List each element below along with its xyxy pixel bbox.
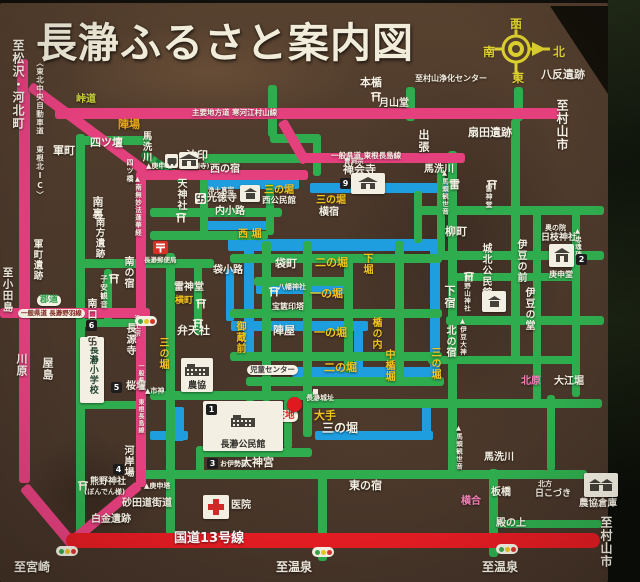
town-road-segment — [138, 470, 587, 479]
map-label: 二の堀 — [324, 362, 357, 373]
map-label: 三の堀 — [264, 186, 294, 196]
map-label: 南方遺跡 — [94, 217, 104, 259]
town-road-segment — [414, 191, 422, 243]
map-label: 伊豆の前 — [515, 239, 525, 283]
map-label: 光徳寺 — [207, 194, 237, 204]
house-landmark-box — [240, 185, 260, 202]
map-title: 長瀞ふるさと案内図 — [36, 9, 481, 69]
current-location-dot — [287, 397, 302, 412]
map-label: 至温泉 — [276, 561, 312, 573]
map-label: 砂田道街道 — [122, 499, 172, 509]
map-label: 下堀 — [361, 253, 371, 275]
map-label: 北方 — [538, 481, 552, 488]
map-label: 内小路 — [215, 207, 245, 217]
map-label: 軍町遺跡 — [32, 239, 42, 281]
map-label: 二の堀 — [315, 257, 348, 268]
map-label: 至村山市 — [556, 99, 568, 151]
map-label: ▲南無妙法蓮華経 — [134, 175, 141, 237]
map-label: 東の宿 — [349, 480, 382, 491]
traffic-light-dot — [71, 549, 76, 554]
map-label: 出張 — [418, 129, 429, 153]
traffic-light-icon — [56, 546, 78, 556]
map-label: 長瀞城址 — [306, 395, 334, 402]
number-badge: 6 — [86, 320, 97, 331]
map-label: 〈東北中央自動車道 東根北IC〉 — [36, 59, 44, 200]
map-label: 伊豆の堂 — [523, 287, 533, 331]
post-landmark-box — [151, 239, 170, 256]
compass-south-label: 南 — [483, 43, 495, 60]
landmark-caption: 農協 — [188, 382, 206, 392]
map-label: 四ツ壇 — [90, 137, 123, 148]
map-label: 月山堂 — [379, 99, 409, 109]
temple-landmark-box — [351, 173, 385, 194]
temple-icon — [357, 173, 379, 194]
map-label: ▲庚申塔 — [144, 483, 170, 490]
torii-icon — [486, 175, 498, 194]
map-label: 大手 — [314, 410, 336, 421]
map-label: ▲市神 — [145, 388, 164, 395]
torii-icon — [108, 269, 120, 288]
map-label: 楯の内 — [370, 317, 380, 350]
map-label: 中楯堀 — [383, 349, 393, 382]
traffic-light-dot — [315, 550, 320, 555]
shrine-icon — [553, 244, 571, 267]
traffic-light-dot — [144, 319, 149, 324]
map-label: 西公民館 — [262, 197, 296, 206]
hall-icon — [230, 401, 256, 441]
map-label: 御蔵前 — [234, 321, 244, 354]
map-sign-photo: 長瀞ふるさと案内図 至松沢・河北町〈東北中央自動車道 東根北IC〉八反遺跡至村山… — [0, 0, 640, 582]
traffic-light-icon — [312, 547, 334, 557]
map-label: 袋町 — [275, 258, 297, 269]
traffic-light-icon — [135, 316, 157, 326]
map-label: (ぼんでん様) — [84, 489, 125, 496]
map-label: 軍町 — [53, 145, 75, 156]
map-label: 扇田遺跡 — [468, 127, 512, 138]
map-label: 白金遺跡 — [91, 515, 131, 525]
traffic-light-dot — [65, 549, 70, 554]
info-pill: 一般県道 長瀞野羽線 — [18, 309, 85, 318]
manji-icon — [195, 189, 206, 208]
map-label: 至小田島 — [2, 267, 13, 313]
shrine-landmark-box — [549, 244, 574, 267]
map-label: 大江堀 — [554, 377, 584, 387]
cross-landmark-box — [203, 495, 229, 519]
map-label: 屋島 — [42, 357, 53, 381]
map-label: 馬洗川 — [141, 131, 151, 163]
map-label: 西 堀 — [238, 230, 261, 240]
map-label: 一般県道 東根長島線 — [137, 363, 143, 434]
number-badge: 1 — [206, 404, 217, 415]
number-badge: 2 — [576, 254, 587, 265]
town-road-segment — [310, 399, 602, 408]
map-label: 西の宿 — [210, 165, 240, 175]
map-label: 熊野神社 — [90, 478, 126, 487]
cross-icon — [207, 495, 225, 519]
bus-landmark-box — [165, 154, 178, 168]
map-label: 馬洗川 — [484, 453, 514, 463]
map-label: 横合 — [461, 497, 481, 507]
landmark-caption: 長瀞公民館 — [220, 441, 265, 451]
traffic-light-dot — [150, 319, 155, 324]
torii-icon — [175, 208, 187, 227]
traffic-light-icon — [496, 544, 518, 554]
map-board: 長瀞ふるさと案内図 至松沢・河北町〈東北中央自動車道 東根北IC〉八反遺跡至村山… — [0, 3, 608, 582]
compass-west-label: 西 — [510, 15, 522, 32]
moat-waterway-segment — [228, 239, 440, 251]
torii-icon — [192, 314, 204, 333]
barn-landmark-box — [584, 473, 618, 497]
traffic-light-dot — [138, 319, 143, 324]
torii-icon — [463, 267, 475, 286]
map-label: 子安観音 — [100, 275, 108, 309]
map-label: 一般県道 東根長島線 — [331, 152, 401, 160]
town-road-segment — [230, 309, 442, 318]
house-icon — [243, 185, 258, 202]
traffic-light-dot — [505, 547, 510, 552]
house-icon — [487, 291, 502, 312]
torii-icon — [195, 294, 207, 313]
map-label: 至松沢・河北町 — [12, 39, 24, 130]
map-label: 三の堀 — [316, 196, 346, 206]
map-label: 至温泉 — [482, 561, 518, 573]
map-label: 南口 — [85, 298, 95, 320]
moat-waterway-segment — [292, 367, 440, 377]
prefectural-road-segment — [19, 91, 30, 483]
map-label: 天神社 — [175, 178, 185, 211]
hall-icon — [184, 358, 210, 382]
national-route-13-road — [66, 533, 600, 548]
map-label: 陣屋 — [273, 325, 295, 336]
map-label: 川原 — [16, 353, 27, 377]
map-label: 庚申堂 — [549, 271, 573, 279]
map-label: 至宮崎 — [14, 561, 50, 573]
map-label: ▲馬頭観世音 — [441, 169, 448, 216]
map-label: 宝篋印塔 — [272, 303, 304, 311]
map-label: 袋小路 — [213, 266, 243, 276]
compass-east-label: 東 — [512, 69, 524, 86]
castle-site-marker — [313, 389, 318, 394]
map-label: 日枝神社 — [541, 234, 577, 243]
traffic-light-dot — [321, 550, 326, 555]
torii-icon — [77, 476, 89, 495]
number-badge: 9 — [340, 178, 351, 189]
map-label: 農協倉庫 — [579, 499, 617, 509]
map-label: 横宿 — [319, 208, 339, 218]
map-label: 南の宿 — [122, 256, 132, 289]
post-icon — [153, 239, 168, 256]
traffic-light-dot — [59, 549, 64, 554]
number-badge: 5 — [111, 382, 122, 393]
compass-north-label: 北 — [553, 43, 565, 60]
map-label: 主要地方道 寒河江村山線 — [192, 109, 277, 117]
traffic-light-dot — [511, 547, 516, 552]
map-label: 至村山市 — [600, 516, 612, 568]
map-label: 八幡神社 — [278, 284, 306, 291]
map-label: 雷神堂 — [174, 283, 204, 293]
map-label: 陣場 — [118, 119, 140, 130]
map-label: 四ツ橋 — [126, 159, 133, 183]
town-road-segment — [533, 209, 541, 403]
map-label: 殿の上 — [496, 519, 526, 529]
traffic-light-dot — [499, 547, 504, 552]
map-label: 三の堀 — [429, 347, 439, 380]
torii-icon — [370, 87, 382, 106]
map-label: 医院 — [231, 501, 251, 511]
map-label: 北原 — [521, 377, 541, 387]
map-label: 峠道 — [76, 95, 96, 105]
map-label: 長瀞郵便局 — [144, 257, 177, 264]
town-road-segment — [246, 377, 444, 386]
map-label: 一の堀 — [310, 288, 343, 299]
map-label: 大神宮 — [241, 457, 274, 468]
map-label: 三の堀 — [322, 422, 358, 434]
map-label: 日こづき — [535, 490, 571, 499]
temple-landmark-box — [179, 152, 198, 169]
map-label: 奥の院 — [545, 225, 566, 232]
map-label: 三の堀 — [157, 337, 167, 370]
info-pill: 郡道 — [37, 295, 61, 306]
town-road-segment — [230, 352, 442, 361]
manji-icon — [87, 332, 98, 351]
bus-icon — [167, 154, 177, 168]
map-label: 横町 — [175, 297, 193, 306]
map-label: 北の宿 — [444, 325, 454, 358]
map-label: 国道13号線 — [174, 532, 244, 545]
map-label: 一の堀 — [314, 327, 347, 338]
map-label: 長源寺 — [124, 323, 134, 356]
traffic-light-dot — [327, 550, 332, 555]
map-label: 馬洗川 — [424, 165, 454, 175]
house-landmark-box — [482, 291, 506, 312]
map-label: ▲伊豆大神 — [459, 317, 466, 356]
number-badge: 4 — [113, 464, 124, 475]
map-label: ▲馬頭観世音 — [455, 424, 462, 471]
map-label: 柳町 — [445, 226, 467, 237]
map-label: 板橋 — [491, 488, 511, 498]
map-label: 城北公民館 — [480, 243, 490, 298]
hall-landmark-box: 農協 — [181, 358, 213, 392]
info-pill: 児童センター — [247, 365, 298, 375]
map-label: 下宿 — [444, 285, 455, 309]
torii-icon — [268, 282, 280, 301]
barn-icon — [588, 473, 614, 497]
temple-icon — [179, 152, 198, 169]
number-badge: 3 — [207, 458, 218, 469]
map-label: 雷 — [449, 179, 460, 190]
